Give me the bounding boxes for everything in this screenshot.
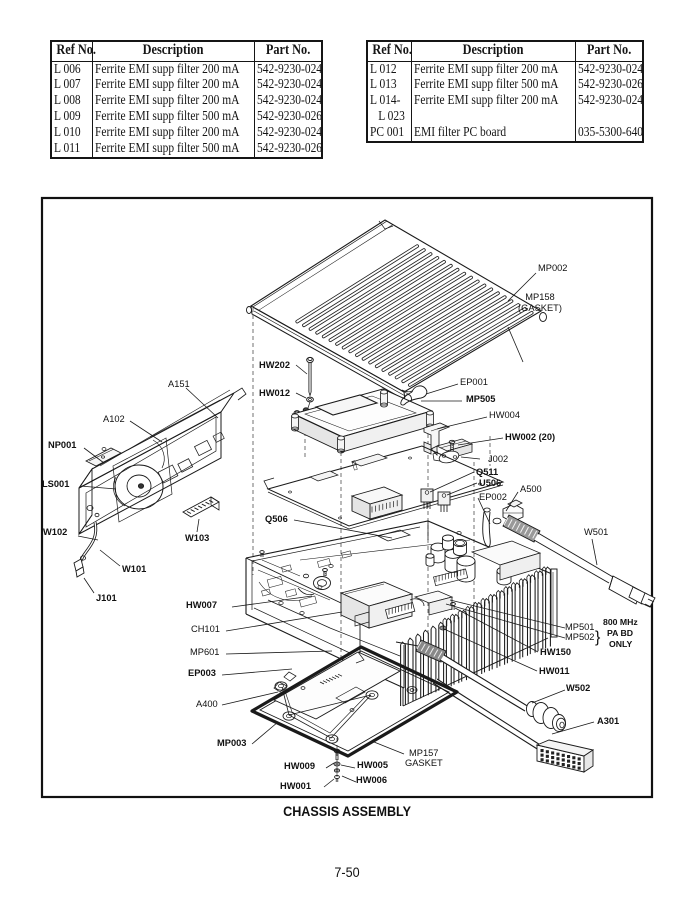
svg-text:HW002 (20): HW002 (20) bbox=[505, 432, 555, 442]
svg-text:W101: W101 bbox=[122, 564, 146, 574]
svg-text:HW006: HW006 bbox=[356, 775, 387, 785]
svg-text:GASKET: GASKET bbox=[405, 758, 443, 768]
svg-text:MP002: MP002 bbox=[538, 263, 567, 273]
svg-text:EP001: EP001 bbox=[460, 377, 488, 387]
svg-text:MP157: MP157 bbox=[409, 748, 438, 758]
svg-text:A151: A151 bbox=[168, 379, 190, 389]
svg-text:W501: W501 bbox=[584, 527, 608, 537]
svg-text:HW001: HW001 bbox=[280, 781, 311, 791]
svg-text:HW004: HW004 bbox=[489, 410, 520, 420]
svg-text:ONLY: ONLY bbox=[609, 639, 633, 649]
svg-text:EP003: EP003 bbox=[188, 668, 216, 678]
svg-text:MP158: MP158 bbox=[525, 292, 554, 302]
svg-text:HW011: HW011 bbox=[539, 666, 570, 676]
svg-text:HW012: HW012 bbox=[259, 388, 290, 398]
svg-text:800 MHz: 800 MHz bbox=[603, 617, 638, 627]
svg-text:A301: A301 bbox=[597, 716, 619, 726]
svg-text:W103: W103 bbox=[185, 533, 209, 543]
svg-text:HW005: HW005 bbox=[357, 760, 388, 770]
svg-text:HW202: HW202 bbox=[259, 360, 290, 370]
svg-text:J002: J002 bbox=[488, 454, 508, 464]
svg-text:HW007: HW007 bbox=[186, 600, 217, 610]
svg-text:PA BD: PA BD bbox=[607, 628, 633, 638]
svg-text:A500: A500 bbox=[520, 484, 542, 494]
svg-text:W102: W102 bbox=[43, 527, 67, 537]
svg-text:}: } bbox=[595, 629, 601, 646]
svg-text:(GASKET): (GASKET) bbox=[518, 303, 562, 313]
svg-text:HW150: HW150 bbox=[540, 647, 571, 657]
svg-text:EP002: EP002 bbox=[479, 492, 507, 502]
svg-text:LS001: LS001 bbox=[42, 479, 69, 489]
svg-text:MP501: MP501 bbox=[565, 622, 594, 632]
svg-text:CH101: CH101 bbox=[191, 624, 220, 634]
svg-text:MP601: MP601 bbox=[190, 647, 219, 657]
svg-text:U506: U506 bbox=[479, 478, 501, 488]
svg-text:Q506: Q506 bbox=[265, 514, 288, 524]
svg-text:MP502: MP502 bbox=[565, 632, 594, 642]
svg-text:W502: W502 bbox=[566, 683, 590, 693]
svg-text:NP001: NP001 bbox=[48, 440, 76, 450]
svg-text:Q511: Q511 bbox=[476, 467, 498, 477]
svg-text:MP003: MP003 bbox=[217, 738, 246, 748]
svg-text:J101: J101 bbox=[96, 593, 117, 603]
svg-text:A400: A400 bbox=[196, 699, 218, 709]
svg-text:MP505: MP505 bbox=[466, 394, 495, 404]
svg-text:A102: A102 bbox=[103, 414, 125, 424]
svg-text:HW009: HW009 bbox=[284, 761, 315, 771]
